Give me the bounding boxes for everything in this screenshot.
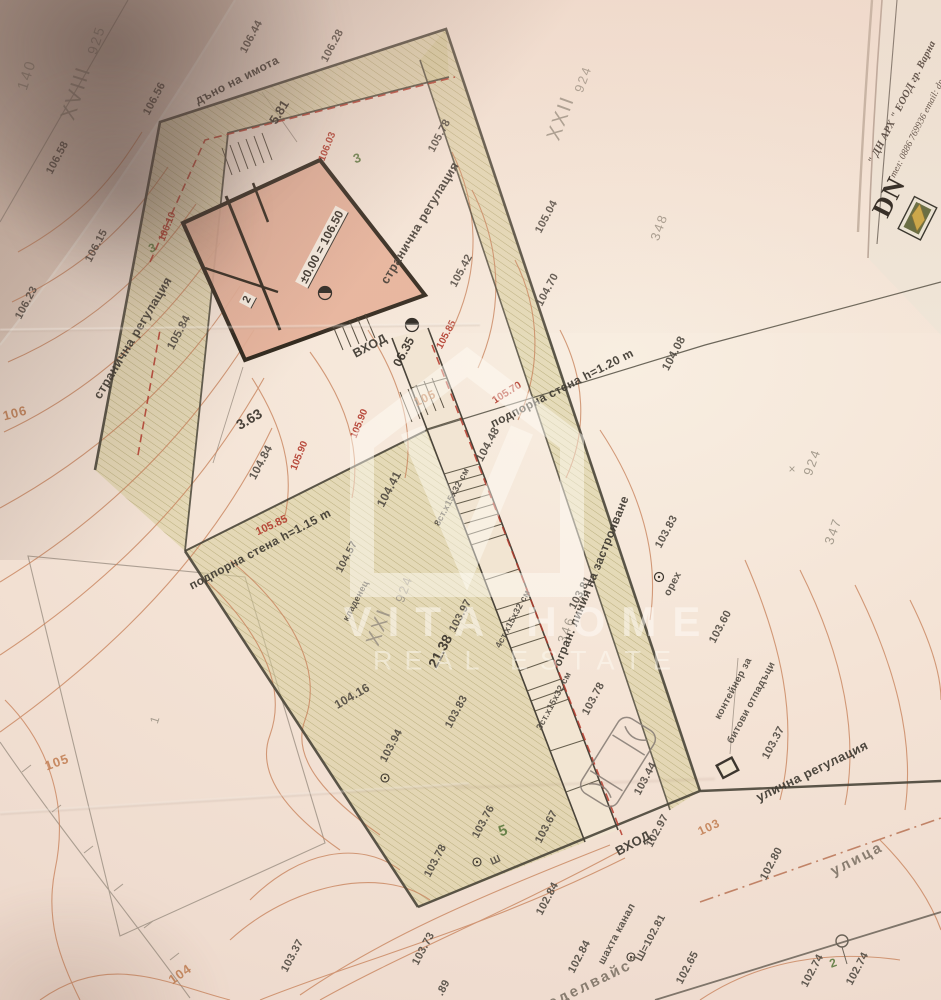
plan-drawing (0, 0, 941, 1000)
regulation-bands (95, 29, 700, 907)
site-plan-photo: 140XVIII925106.58106.56106.44дъно на имо… (0, 0, 941, 1000)
tree-symbol (655, 573, 664, 582)
container-symbol (717, 758, 739, 778)
